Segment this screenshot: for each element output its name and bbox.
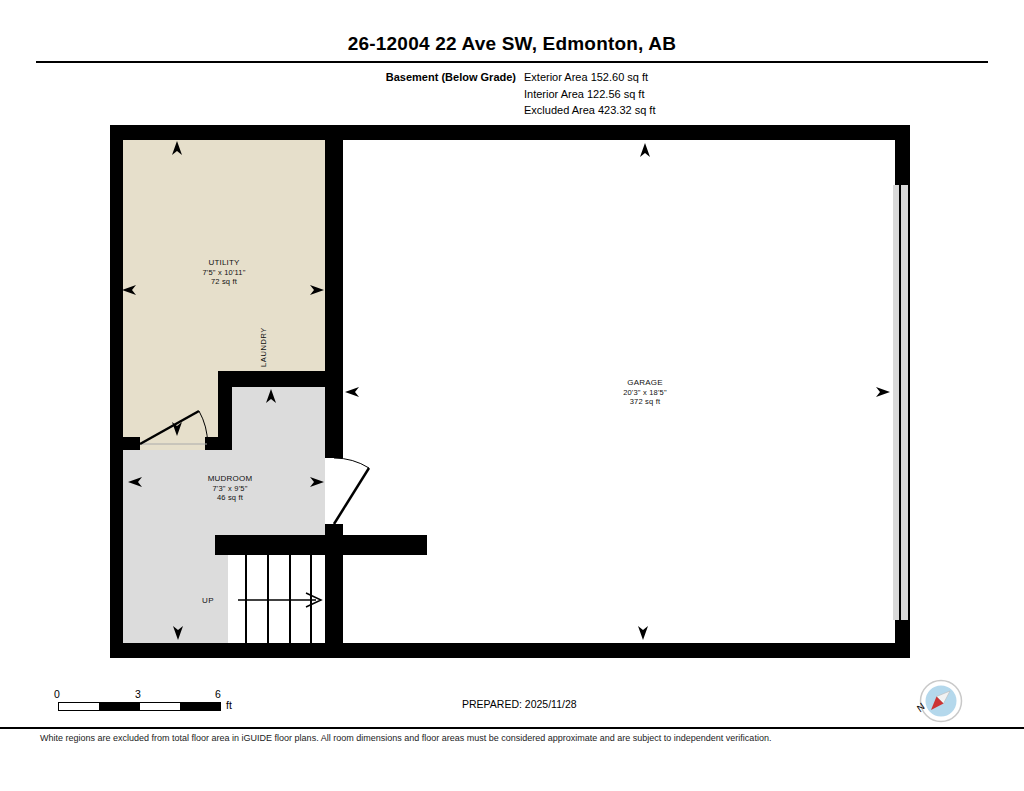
compass-icon [919, 679, 963, 723]
utility-name: UTILITY [164, 258, 284, 268]
wall-utility-mudroom [218, 371, 325, 387]
wall-utility-garage [325, 140, 343, 458]
scale-unit-label: ft [226, 699, 232, 711]
mudroom-name: MUDROOM [170, 474, 290, 484]
mudroom-upper-floor [232, 387, 325, 450]
excluded-area-text: Excluded Area 423.32 sq ft [524, 104, 784, 116]
exterior-area-text: Exterior Area 152.60 sq ft [524, 71, 784, 83]
stair-tread-line [289, 555, 291, 643]
mudroom-room-label: MUDROOM 7'3" x 9'5" 46 sq ft [170, 474, 290, 503]
scale-bar [58, 702, 221, 711]
interior-area-text: Interior Area 122.56 sq ft [524, 88, 784, 100]
stair-tread-line [310, 555, 312, 643]
garage-area: 372 sq ft [585, 397, 705, 407]
floor-label: Basement (Below Grade) [300, 71, 516, 83]
wall-stairwell-top [215, 535, 427, 555]
staircase [228, 555, 325, 643]
scale-tick-3: 3 [135, 688, 141, 700]
door-jamb-left [123, 437, 140, 450]
laundry-label: LAUNDRY [238, 322, 288, 372]
scale-tick-6: 6 [215, 688, 221, 700]
prepared-date: PREPARED: 2025/11/28 [462, 698, 577, 710]
utility-room-label: UTILITY 7'5" x 10'11" 72 sq ft [164, 258, 284, 287]
garage-door-panel-line [899, 185, 901, 620]
utility-area: 72 sq ft [164, 277, 284, 287]
scale-segment [59, 703, 99, 710]
garage-name: GARAGE [585, 378, 705, 388]
door-jamb-right [205, 437, 232, 450]
utility-dimensions: 7'5" x 10'11" [164, 268, 284, 278]
stairs-up-label: UP [202, 596, 214, 605]
garage-room-label: GARAGE 20'3" x 18'5" 372 sq ft [585, 378, 705, 407]
mudroom-area: 46 sq ft [170, 493, 290, 503]
scale-segment [180, 703, 220, 710]
stair-tread-line [245, 555, 247, 643]
disclaimer-text: White regions are excluded from total fl… [40, 733, 980, 743]
scale-tick-0: 0 [54, 688, 60, 700]
title-divider [36, 61, 988, 63]
footer-divider [0, 727, 1024, 729]
stair-tread-line [267, 555, 269, 643]
garage-dimensions: 20'3" x 18'5" [585, 388, 705, 398]
scale-segment [99, 703, 139, 710]
mudroom-dimensions: 7'3" x 9'5" [170, 484, 290, 494]
page-title: 26-12004 22 Ave SW, Edmonton, AB [0, 33, 1024, 55]
scale-segment [140, 703, 180, 710]
garage-door [893, 185, 908, 620]
